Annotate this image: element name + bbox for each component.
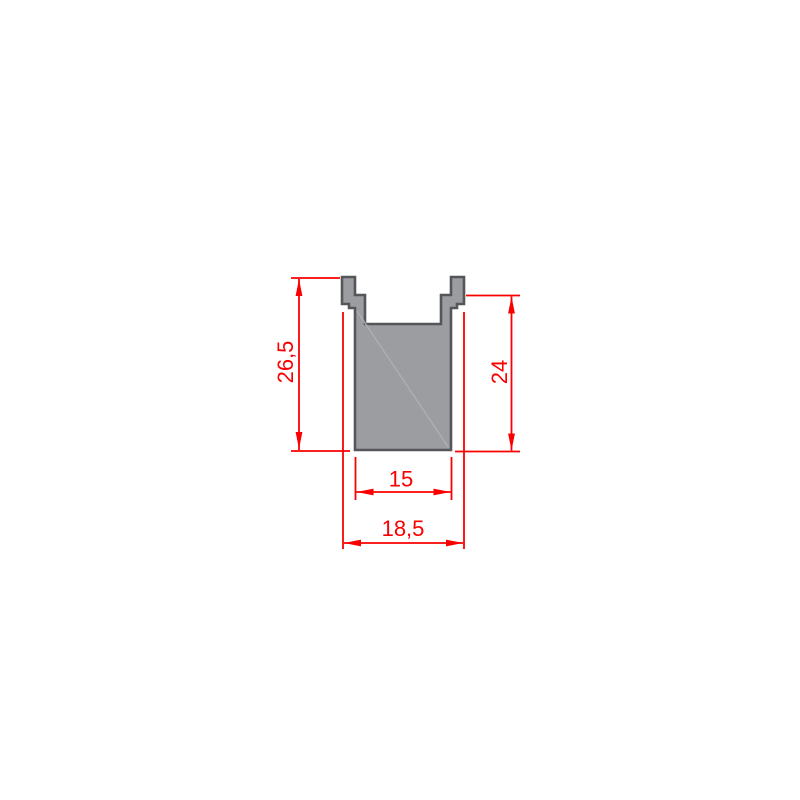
dimension-label-width-inner: 15 bbox=[389, 467, 413, 492]
dimension-width-inner: 15 bbox=[356, 457, 452, 500]
arrowhead-down-icon bbox=[296, 432, 303, 449]
dimension-label-height-overall: 26,5 bbox=[273, 341, 298, 384]
arrowhead-left-icon bbox=[357, 489, 374, 496]
arrowhead-left-icon bbox=[344, 540, 361, 547]
dimension-height-overall: 26,5 bbox=[273, 278, 350, 451]
drawing-canvas: 26,5 24 15 18,5 bbox=[0, 0, 800, 800]
arrowhead-up-icon bbox=[296, 279, 303, 296]
arrowhead-up-icon bbox=[508, 297, 515, 314]
arrowhead-right-icon bbox=[446, 540, 463, 547]
profile-outline bbox=[342, 277, 464, 450]
technical-drawing: 26,5 24 15 18,5 bbox=[0, 0, 800, 800]
dimension-label-width-overall: 18,5 bbox=[382, 516, 425, 541]
profile-cross-section bbox=[342, 277, 464, 450]
arrowhead-down-icon bbox=[508, 434, 515, 451]
dimension-label-height-body: 24 bbox=[487, 360, 512, 384]
arrowhead-right-icon bbox=[434, 489, 451, 496]
